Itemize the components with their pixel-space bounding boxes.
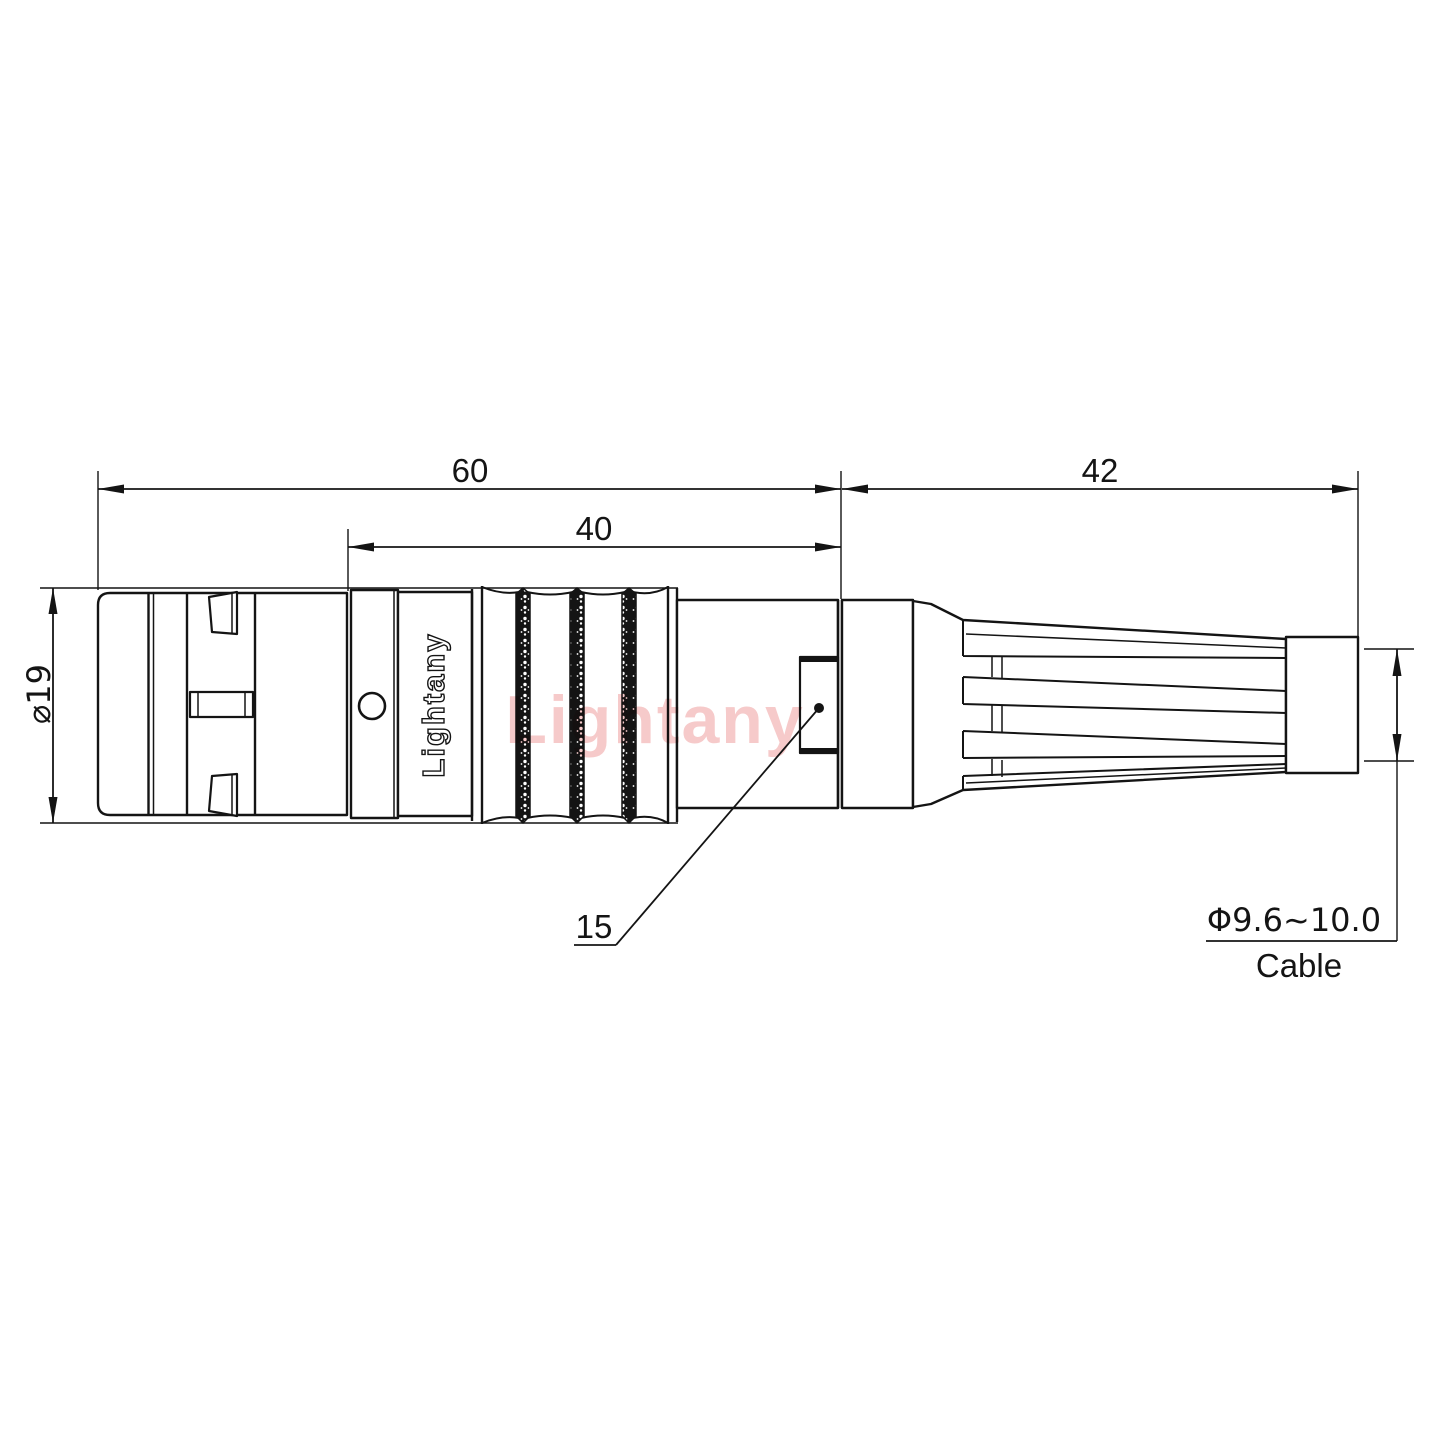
cable-diameter-label: Φ9.6~10.0 — [1207, 901, 1381, 939]
dim-60-label: 60 — [452, 452, 489, 489]
top-latch-tab — [209, 592, 237, 634]
dim-40-label: 40 — [576, 510, 613, 547]
dim-42-label: 42 — [1082, 452, 1119, 489]
shell-marking-text: Lightany — [416, 632, 451, 777]
cable-collar — [1286, 637, 1358, 773]
dim-overall-length-60: 60 — [98, 452, 841, 599]
connector-front-shell — [98, 592, 347, 816]
vent-hole — [359, 693, 385, 719]
dim-15-label: 15 — [576, 908, 613, 945]
strain-relief-boot — [913, 601, 1358, 807]
connector-technical-drawing: Lightany — [0, 0, 1440, 1440]
dim-grip-length-40: 40 — [348, 510, 841, 591]
key-slot — [190, 692, 253, 717]
watermark-text: Lightany — [505, 682, 804, 758]
cable-label: Cable — [1256, 947, 1342, 984]
back-nut — [842, 600, 913, 808]
bottom-latch-tab — [209, 774, 237, 816]
connector-mid-section: Lightany — [351, 590, 472, 818]
drawing-canvas: Lightany — [0, 0, 1440, 1440]
dim-dia19-label: ⌀19 — [20, 664, 58, 724]
